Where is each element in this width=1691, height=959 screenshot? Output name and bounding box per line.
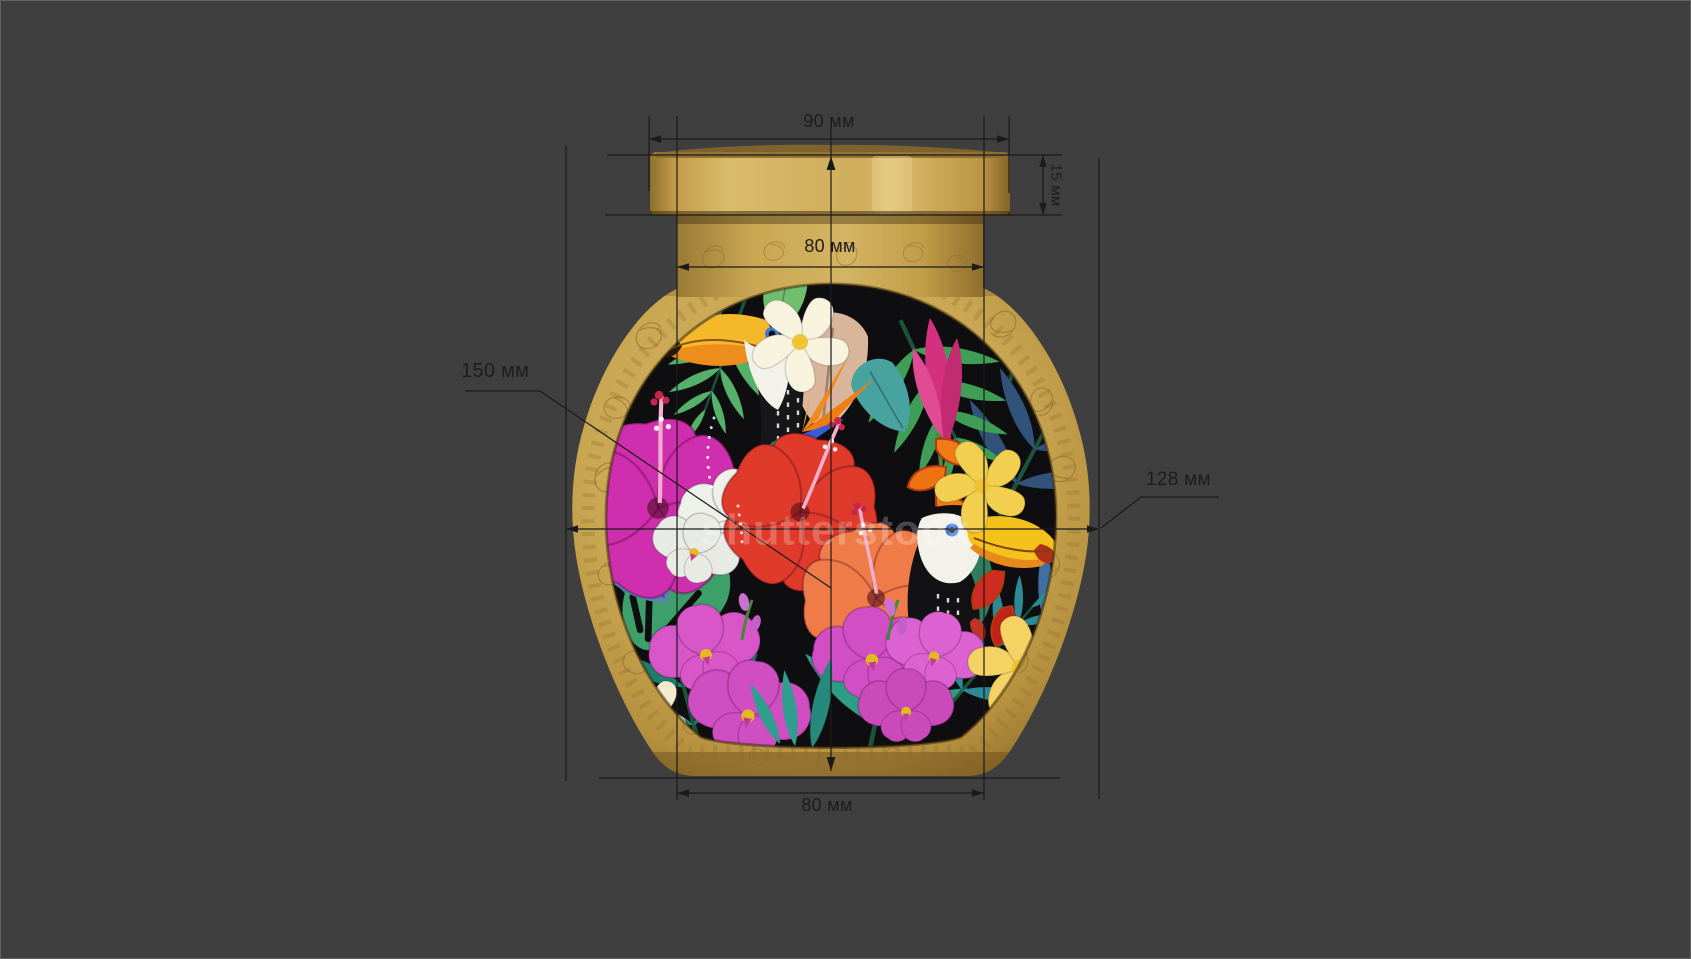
dimension-label-body-width: 128 мм xyxy=(1146,470,1211,489)
dimension-label-base-width: 80 мм xyxy=(801,796,852,814)
dimension-label-neck-width: 80 мм xyxy=(804,237,855,255)
jar-technical-drawing xyxy=(0,0,1691,959)
dimension-label-lid-height: 15 мм xyxy=(1049,164,1064,207)
dimension-label-lid-width: 90 мм xyxy=(803,112,854,130)
dimension-label-body-height: 150 мм xyxy=(461,361,529,381)
dimension-drawing-canvas: 90 мм 80 мм 15 мм 150 мм 128 мм 80 мм sh… xyxy=(0,0,1691,959)
stock-watermark: shutterstock xyxy=(701,507,971,556)
